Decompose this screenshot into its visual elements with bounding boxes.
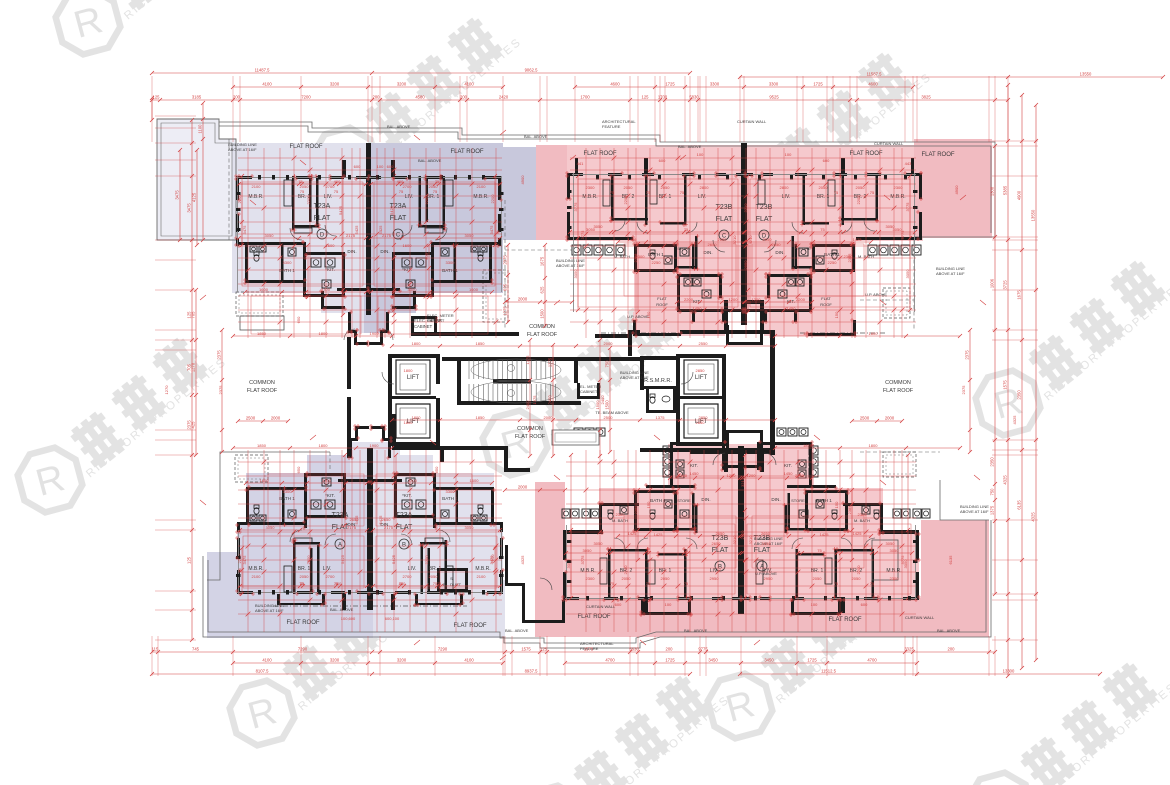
svg-text:2050: 2050	[624, 185, 634, 190]
svg-text:ABOVE AT 16/F: ABOVE AT 16/F	[960, 509, 989, 514]
svg-text:M.B.R.: M.B.R.	[475, 566, 490, 572]
svg-text:2100: 2100	[477, 184, 487, 189]
svg-text:FLAT ROOF: FLAT ROOF	[921, 152, 954, 158]
svg-text:BR. 1: BR. 1	[298, 566, 311, 572]
svg-text:2175: 2175	[382, 233, 392, 238]
svg-text:150: 150	[834, 501, 839, 508]
svg-text:2050: 2050	[852, 576, 862, 581]
svg-text:3475: 3475	[187, 203, 192, 213]
svg-text:3050: 3050	[594, 541, 604, 546]
svg-text:11587.5: 11587.5	[867, 72, 882, 77]
svg-text:1450: 1450	[690, 471, 700, 476]
svg-text:4100: 4100	[262, 658, 272, 663]
svg-text:1375: 1375	[532, 395, 537, 405]
svg-text:2200: 2200	[623, 565, 628, 575]
svg-text:13550: 13550	[1031, 209, 1036, 221]
svg-text:3475: 3475	[489, 555, 494, 565]
svg-text:2950: 2950	[710, 576, 720, 581]
svg-text:2650: 2650	[718, 237, 728, 242]
svg-text:D: D	[320, 232, 325, 238]
svg-text:1425: 1425	[853, 531, 863, 536]
svg-text:COMMON: COMMON	[529, 324, 555, 330]
svg-text:200: 200	[948, 647, 956, 652]
svg-text:3475: 3475	[242, 555, 247, 565]
svg-text:LIV.: LIV.	[408, 566, 416, 572]
svg-text:LIFT: LIFT	[407, 375, 420, 381]
svg-text:BATH 1: BATH 1	[816, 498, 832, 503]
svg-text:9525: 9525	[769, 95, 779, 100]
svg-text:1425: 1425	[853, 237, 863, 242]
svg-text:3300: 3300	[446, 260, 456, 265]
svg-text:6135: 6135	[1017, 500, 1022, 510]
svg-text:200: 200	[373, 95, 381, 100]
svg-text:3185: 3185	[192, 95, 202, 100]
svg-text:FLAT ROOF: FLAT ROOF	[286, 620, 319, 626]
svg-text:FLAT ROOF: FLAT ROOF	[289, 144, 322, 150]
svg-text:1425: 1425	[654, 532, 664, 537]
svg-text:5425: 5425	[354, 515, 359, 525]
svg-text:2100: 2100	[252, 574, 262, 579]
svg-text:3450: 3450	[764, 658, 774, 663]
svg-text:8937.5: 8937.5	[525, 669, 538, 674]
svg-text:FLAT: FLAT	[821, 296, 831, 301]
svg-text:425: 425	[191, 421, 196, 429]
svg-text:M. BATH: M. BATH	[854, 518, 870, 523]
svg-text:13300: 13300	[1003, 669, 1015, 674]
svg-text:2650: 2650	[761, 531, 771, 536]
svg-text:1800: 1800	[412, 415, 422, 420]
svg-text:2000: 2000	[544, 415, 554, 420]
svg-text:4325: 4325	[1003, 475, 1008, 485]
svg-text:5425: 5425	[378, 225, 383, 235]
svg-text:4100: 4100	[464, 658, 474, 663]
svg-text:5425: 5425	[378, 515, 383, 525]
svg-text:1800: 1800	[319, 331, 329, 336]
svg-text:4100: 4100	[262, 82, 272, 87]
svg-text:100,600: 100,600	[341, 616, 356, 621]
svg-text:A: A	[338, 542, 342, 548]
svg-text:3300: 3300	[283, 260, 293, 265]
svg-text:KIT.: KIT.	[690, 463, 698, 468]
svg-text:7290: 7290	[298, 647, 308, 652]
svg-text:3300: 3300	[710, 82, 720, 87]
svg-text:BR. 1: BR. 1	[817, 194, 830, 200]
svg-text:BATH 1: BATH 1	[824, 252, 840, 257]
svg-text:M.B.R.: M.B.R.	[890, 194, 905, 200]
svg-text:B: B	[718, 564, 722, 570]
svg-text:1275: 1275	[503, 306, 508, 316]
svg-text:2200: 2200	[856, 195, 861, 205]
svg-text:1375: 1375	[656, 415, 666, 420]
svg-text:DIN.: DIN.	[701, 497, 710, 502]
svg-text:1270: 1270	[164, 385, 169, 395]
svg-text:3300: 3300	[283, 489, 293, 494]
svg-text:2000: 2000	[885, 416, 895, 421]
svg-text:3300: 3300	[408, 478, 418, 483]
svg-text:3775: 3775	[905, 202, 910, 212]
svg-text:2200: 2200	[306, 195, 311, 205]
svg-text:2200: 2200	[623, 195, 628, 205]
svg-text:75: 75	[684, 581, 689, 586]
svg-text:75: 75	[684, 227, 689, 232]
svg-text:FLAT ROOF: FLAT ROOF	[577, 614, 610, 620]
svg-text:B: B	[402, 542, 406, 548]
svg-text:1850: 1850	[476, 341, 486, 346]
svg-text:1850: 1850	[476, 415, 486, 420]
svg-text:4900: 4900	[520, 175, 525, 185]
svg-text:3050: 3050	[266, 525, 276, 530]
svg-text:M.B.R.: M.B.R.	[580, 568, 595, 574]
svg-text:1600: 1600	[326, 243, 336, 248]
svg-text:650: 650	[296, 316, 301, 323]
svg-text:2300: 2300	[586, 576, 596, 581]
svg-text:2375: 2375	[961, 385, 966, 395]
svg-text:3210: 3210	[740, 477, 745, 487]
svg-text:3210: 3210	[743, 203, 748, 213]
svg-text:2200: 2200	[424, 555, 429, 565]
svg-text:1300: 1300	[990, 186, 995, 196]
svg-text:75: 75	[820, 227, 825, 232]
svg-text:1425: 1425	[820, 532, 830, 537]
svg-text:2950: 2950	[743, 260, 748, 270]
svg-text:CURTAIN WALL: CURTAIN WALL	[737, 119, 767, 124]
svg-text:2300: 2300	[894, 185, 904, 190]
svg-text:BAL. ABOVE: BAL. ABOVE	[418, 158, 442, 163]
svg-text:75: 75	[433, 581, 438, 586]
svg-text:3050: 3050	[886, 541, 896, 546]
svg-text:2050: 2050	[661, 576, 671, 581]
svg-text:1100: 1100	[198, 124, 203, 134]
svg-text:4900: 4900	[954, 185, 959, 195]
svg-text:M. BATH: M. BATH	[612, 518, 628, 523]
svg-text:FLAT: FLAT	[657, 296, 667, 301]
svg-text:CURTAIN WALL: CURTAIN WALL	[874, 141, 904, 146]
svg-text:2250: 2250	[828, 260, 838, 265]
svg-text:11487.5: 11487.5	[255, 68, 270, 73]
svg-text:3210: 3210	[748, 535, 753, 545]
svg-text:1800: 1800	[869, 443, 879, 448]
svg-text:1600: 1600	[260, 478, 270, 483]
svg-text:2650: 2650	[712, 541, 722, 546]
svg-text:1600: 1600	[403, 243, 413, 248]
svg-text:2550: 2550	[699, 341, 709, 346]
svg-text:2050: 2050	[622, 576, 632, 581]
svg-text:1900: 1900	[370, 443, 380, 448]
svg-text:3475: 3475	[489, 225, 494, 235]
svg-text:125: 125	[642, 95, 650, 100]
svg-text:FLAT ROOF: FLAT ROOF	[450, 149, 483, 155]
svg-text:4900: 4900	[1017, 190, 1022, 200]
svg-text:125: 125	[153, 95, 161, 100]
svg-text:1575: 1575	[584, 647, 594, 652]
svg-text:75: 75	[870, 190, 875, 195]
svg-text:4100: 4100	[464, 82, 474, 87]
svg-text:2375: 2375	[965, 350, 970, 360]
svg-text:2420: 2420	[499, 95, 509, 100]
svg-text:COMMON: COMMON	[885, 380, 911, 386]
svg-text:1006: 1006	[990, 278, 995, 288]
svg-text:2300: 2300	[890, 576, 900, 581]
svg-text:2200: 2200	[678, 473, 688, 478]
svg-text:1500: 1500	[540, 309, 545, 319]
svg-text:75: 75	[399, 189, 404, 194]
svg-text:400: 400	[334, 179, 341, 184]
svg-text:3050: 3050	[886, 224, 896, 229]
svg-text:75: 75	[684, 548, 689, 553]
svg-text:ABOVE AT 16/F: ABOVE AT 16/F	[228, 147, 257, 152]
svg-text:3200: 3200	[330, 82, 340, 87]
svg-text:150: 150	[646, 501, 651, 508]
svg-text:705: 705	[191, 311, 196, 319]
svg-text:2300: 2300	[616, 512, 626, 517]
svg-text:2650: 2650	[762, 541, 772, 546]
svg-text:BAL. ABOVE: BAL. ABOVE	[524, 134, 548, 139]
svg-text:1200: 1200	[729, 297, 739, 302]
svg-text:1800: 1800	[869, 331, 879, 336]
svg-text:75: 75	[817, 548, 822, 553]
svg-text:100: 100	[697, 152, 704, 157]
svg-text:1450: 1450	[784, 471, 794, 476]
svg-text:3775: 3775	[900, 230, 905, 240]
svg-text:KIT.: KIT.	[693, 299, 701, 304]
svg-text:T23A: T23A	[314, 203, 331, 210]
svg-text:7290: 7290	[438, 647, 448, 652]
svg-text:FLAT ROOF: FLAT ROOF	[247, 388, 278, 394]
svg-text:2700: 2700	[326, 574, 336, 579]
svg-text:125: 125	[187, 556, 192, 564]
svg-text:75: 75	[334, 189, 339, 194]
svg-text:2200: 2200	[424, 195, 429, 205]
svg-text:3300: 3300	[446, 489, 456, 494]
svg-text:1675: 1675	[1017, 290, 1022, 300]
svg-text:1800: 1800	[404, 368, 414, 373]
svg-text:3825: 3825	[921, 95, 931, 100]
svg-text:3475: 3475	[242, 225, 247, 235]
svg-text:1800: 1800	[412, 341, 422, 346]
svg-text:9062.5: 9062.5	[525, 68, 538, 73]
svg-text:1850: 1850	[257, 331, 267, 336]
svg-text:2200: 2200	[490, 194, 495, 204]
svg-text:2375: 2375	[503, 255, 508, 265]
svg-text:STORE: STORE	[677, 498, 691, 503]
svg-text:1450: 1450	[787, 306, 797, 311]
svg-text:1375: 1375	[548, 357, 553, 367]
svg-text:1600: 1600	[470, 478, 480, 483]
svg-text:75: 75	[680, 190, 685, 195]
svg-text:2250: 2250	[652, 260, 662, 265]
svg-text:3050: 3050	[465, 233, 475, 238]
svg-text:BATH 1: BATH 1	[279, 268, 295, 273]
svg-text:600,100: 600,100	[385, 616, 400, 621]
svg-text:200: 200	[460, 95, 468, 100]
svg-text:1725: 1725	[665, 82, 675, 87]
svg-text:2050: 2050	[300, 574, 310, 579]
svg-text:75: 75	[300, 189, 305, 194]
svg-text:3210: 3210	[732, 535, 737, 545]
svg-text:650: 650	[434, 316, 439, 323]
svg-text:KIT.: KIT.	[784, 463, 792, 468]
svg-text:2175: 2175	[384, 525, 394, 530]
svg-text:4580: 4580	[415, 95, 425, 100]
svg-text:CURTAIN WALL: CURTAIN WALL	[586, 604, 616, 609]
svg-text:2100: 2100	[252, 184, 262, 189]
svg-text:2050: 2050	[813, 576, 823, 581]
svg-text:*KIT.: *KIT.	[325, 493, 335, 498]
svg-text:2300: 2300	[586, 185, 596, 190]
svg-text:5425: 5425	[389, 205, 394, 215]
svg-text:2000: 2000	[604, 341, 614, 346]
svg-text:1800: 1800	[319, 443, 329, 448]
svg-text:2800: 2800	[780, 185, 790, 190]
svg-text:U.P. ABOVE: U.P. ABOVE	[865, 292, 887, 297]
svg-text:100: 100	[785, 152, 792, 157]
svg-text:600: 600	[861, 602, 868, 607]
svg-text:3475: 3475	[175, 190, 180, 200]
svg-text:200: 200	[233, 95, 241, 100]
svg-text:FEATURE: FEATURE	[602, 124, 621, 129]
svg-text:1600: 1600	[469, 287, 479, 292]
svg-text:2400: 2400	[525, 400, 530, 410]
svg-text:CABINET: CABINET	[580, 389, 598, 394]
svg-text:2300: 2300	[844, 254, 854, 259]
svg-text:650: 650	[296, 466, 301, 473]
svg-text:3725: 3725	[1003, 280, 1008, 290]
svg-text:3200: 3200	[397, 82, 407, 87]
svg-text:600: 600	[615, 602, 622, 607]
svg-text:8107.5: 8107.5	[256, 669, 269, 674]
svg-text:M. BATH: M. BATH	[614, 254, 630, 259]
svg-text:CURTAIN WALL: CURTAIN WALL	[905, 615, 935, 620]
svg-text:M.B.R.: M.B.R.	[248, 566, 263, 572]
svg-text:100: 100	[665, 602, 672, 607]
svg-text:1725: 1725	[665, 658, 675, 663]
svg-text:CABINET: CABINET	[414, 324, 433, 329]
svg-text:3775: 3775	[900, 555, 905, 565]
svg-text:750: 750	[990, 488, 995, 496]
svg-text:1800: 1800	[404, 420, 414, 425]
svg-text:BR. 1: BR. 1	[429, 566, 442, 572]
svg-text:ABOVE AT 16/F: ABOVE AT 16/F	[556, 263, 585, 268]
svg-text:1575: 1575	[521, 647, 531, 652]
svg-text:3050: 3050	[465, 525, 475, 530]
svg-text:5425: 5425	[340, 554, 345, 564]
svg-text:2500: 2500	[246, 416, 256, 421]
svg-text:ROOF: ROOF	[820, 302, 832, 307]
svg-text:75: 75	[834, 190, 839, 195]
svg-text:3200: 3200	[330, 658, 340, 663]
svg-text:ROOF: ROOF	[656, 302, 668, 307]
svg-text:3300: 3300	[769, 82, 779, 87]
svg-text:13550: 13550	[1080, 72, 1092, 77]
svg-text:7200: 7200	[301, 95, 311, 100]
svg-text:3200: 3200	[397, 658, 407, 663]
svg-text:COMMON: COMMON	[249, 380, 275, 386]
svg-text:3050: 3050	[583, 548, 593, 553]
svg-text:6135: 6135	[948, 555, 953, 565]
svg-text:1725: 1725	[807, 658, 817, 663]
svg-text:75: 75	[334, 581, 339, 586]
svg-text:2850: 2850	[696, 368, 706, 373]
svg-text:3050: 3050	[890, 548, 900, 553]
svg-text:2950: 2950	[764, 576, 774, 581]
svg-text:LIV.: LIV.	[698, 194, 706, 200]
svg-text:4325: 4325	[1012, 415, 1017, 425]
svg-text:2300: 2300	[858, 512, 868, 517]
svg-text:3450: 3450	[708, 658, 718, 663]
svg-text:2850: 2850	[696, 420, 706, 425]
svg-text:3050: 3050	[573, 269, 578, 279]
svg-text:2375: 2375	[217, 350, 222, 360]
svg-text:BAL. ABOVE: BAL. ABOVE	[387, 124, 411, 129]
svg-text:100: 100	[377, 164, 384, 169]
svg-text:3050: 3050	[594, 224, 604, 229]
svg-text:3300: 3300	[322, 478, 332, 483]
svg-text:ABOVE AT 16/F: ABOVE AT 16/F	[255, 608, 284, 613]
svg-text:2350: 2350	[990, 457, 995, 467]
svg-text:3210: 3210	[732, 235, 737, 245]
svg-text:1575: 1575	[1003, 380, 1008, 390]
svg-text:625: 625	[540, 286, 545, 294]
svg-text:2500: 2500	[604, 415, 614, 420]
svg-text:2385: 2385	[847, 505, 852, 515]
svg-text:3775: 3775	[573, 202, 578, 212]
svg-text:2800: 2800	[700, 185, 710, 190]
svg-text:BAL. ABOVE: BAL. ABOVE	[505, 628, 529, 633]
svg-text:650: 650	[434, 466, 439, 473]
svg-text:2400: 2400	[548, 395, 553, 405]
svg-text:625: 625	[503, 283, 508, 291]
svg-text:100: 100	[811, 602, 818, 607]
svg-text:75: 75	[437, 581, 442, 586]
svg-text:FLAT ROOF: FLAT ROOF	[453, 623, 486, 629]
svg-text:M.B.R.: M.B.R.	[582, 194, 597, 200]
svg-text:11512.5: 11512.5	[821, 669, 836, 674]
svg-text:5425: 5425	[391, 554, 396, 564]
svg-text:*KIT.: *KIT.	[325, 267, 335, 272]
svg-text:2650: 2650	[772, 242, 782, 247]
svg-text:5385: 5385	[1003, 185, 1008, 195]
svg-text:LIV.: LIV.	[782, 194, 790, 200]
svg-text:FLAT ROOF: FLAT ROOF	[883, 388, 914, 394]
svg-text:441: 441	[577, 161, 584, 166]
svg-text:FLAT ROOF: FLAT ROOF	[828, 617, 861, 623]
svg-text:M.B.R.: M.B.R.	[473, 194, 488, 200]
svg-text:4700: 4700	[867, 658, 877, 663]
svg-text:745: 745	[192, 647, 200, 652]
svg-text:2100: 2100	[477, 574, 487, 579]
svg-text:1375: 1375	[525, 355, 530, 365]
svg-text:2650: 2650	[708, 242, 718, 247]
svg-text:1450: 1450	[693, 306, 703, 311]
svg-text:1850: 1850	[257, 443, 267, 448]
svg-text:DIN.: DIN.	[775, 250, 784, 255]
svg-text:600: 600	[387, 164, 394, 169]
svg-text:3775: 3775	[580, 230, 585, 240]
svg-text:150: 150	[646, 311, 651, 318]
svg-text:*KIT.: *KIT.	[402, 493, 412, 498]
svg-text:2700: 2700	[403, 574, 413, 579]
svg-text:2200: 2200	[856, 565, 861, 575]
svg-text:4700: 4700	[605, 658, 615, 663]
svg-text:1500: 1500	[605, 400, 610, 410]
svg-text:4325: 4325	[520, 555, 525, 565]
svg-text:443: 443	[905, 161, 912, 166]
svg-text:600: 600	[659, 158, 666, 163]
svg-text:FLAT ROOF: FLAT ROOF	[515, 434, 546, 440]
svg-text:FLAT: FLAT	[390, 215, 407, 222]
svg-text:LIV.: LIV.	[405, 194, 413, 200]
svg-text:2000: 2000	[518, 485, 528, 490]
